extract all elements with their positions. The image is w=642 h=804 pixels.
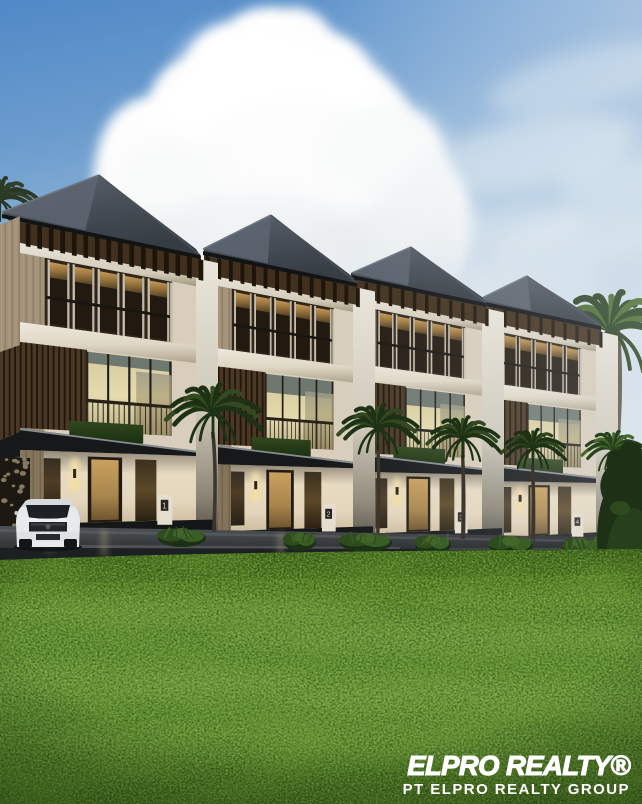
svg-text:PT ELPRO REALTY GROUP: PT ELPRO REALTY GROUP <box>403 781 630 798</box>
svg-text:1: 1 <box>162 501 167 510</box>
svg-text:ELPRO REALTY®: ELPRO REALTY® <box>407 750 631 781</box>
